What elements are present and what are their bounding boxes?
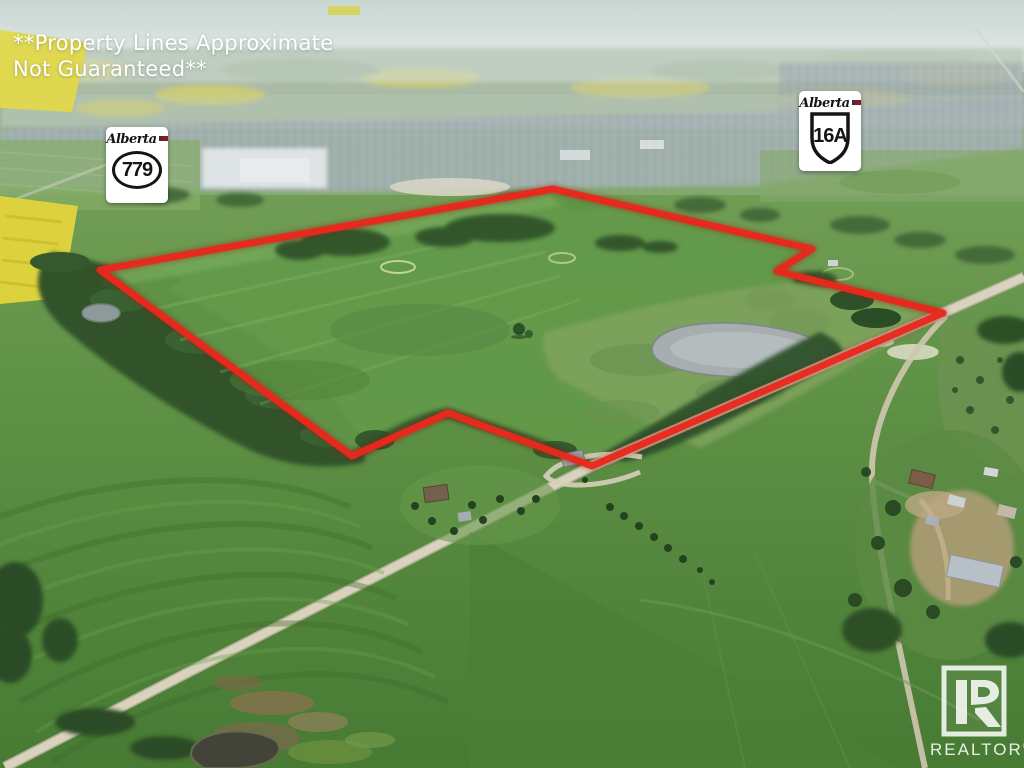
alberta-script-label: Alberta [799,96,861,111]
disclaimer-line-1: **Property Lines Approximate [13,30,333,56]
small-pond [82,304,120,322]
listing-photo: **Property Lines Approximate Not Guarant… [0,0,1024,768]
gravel-yard [390,178,510,196]
realtor-r-icon [941,665,1007,737]
route-oval-outline: 779 [112,151,162,189]
shed [458,511,472,522]
lone-tree [513,323,525,335]
realtor-logo: REALTOR® [930,665,1018,760]
highway-shield-779: Alberta 779 [106,127,168,203]
disclaimer-line-2: Not Guaranteed** [13,56,333,82]
alberta-flag-icon [159,136,168,141]
disclaimer-text: **Property Lines Approximate Not Guarant… [13,30,333,82]
aerial-scene [0,0,1024,768]
alberta-script-label: Alberta [106,132,168,147]
highway-shield-16a: Alberta 16A [799,91,861,171]
route-number-16a: 16A [806,125,854,148]
alberta-flag-icon [852,100,861,105]
acreage-house [828,260,838,266]
dark-pond [191,731,279,768]
route-number-779: 779 [122,159,152,182]
route-shield-outline: 16A [806,112,854,164]
house [423,484,449,502]
realtor-wordmark: REALTOR® [930,740,1018,760]
